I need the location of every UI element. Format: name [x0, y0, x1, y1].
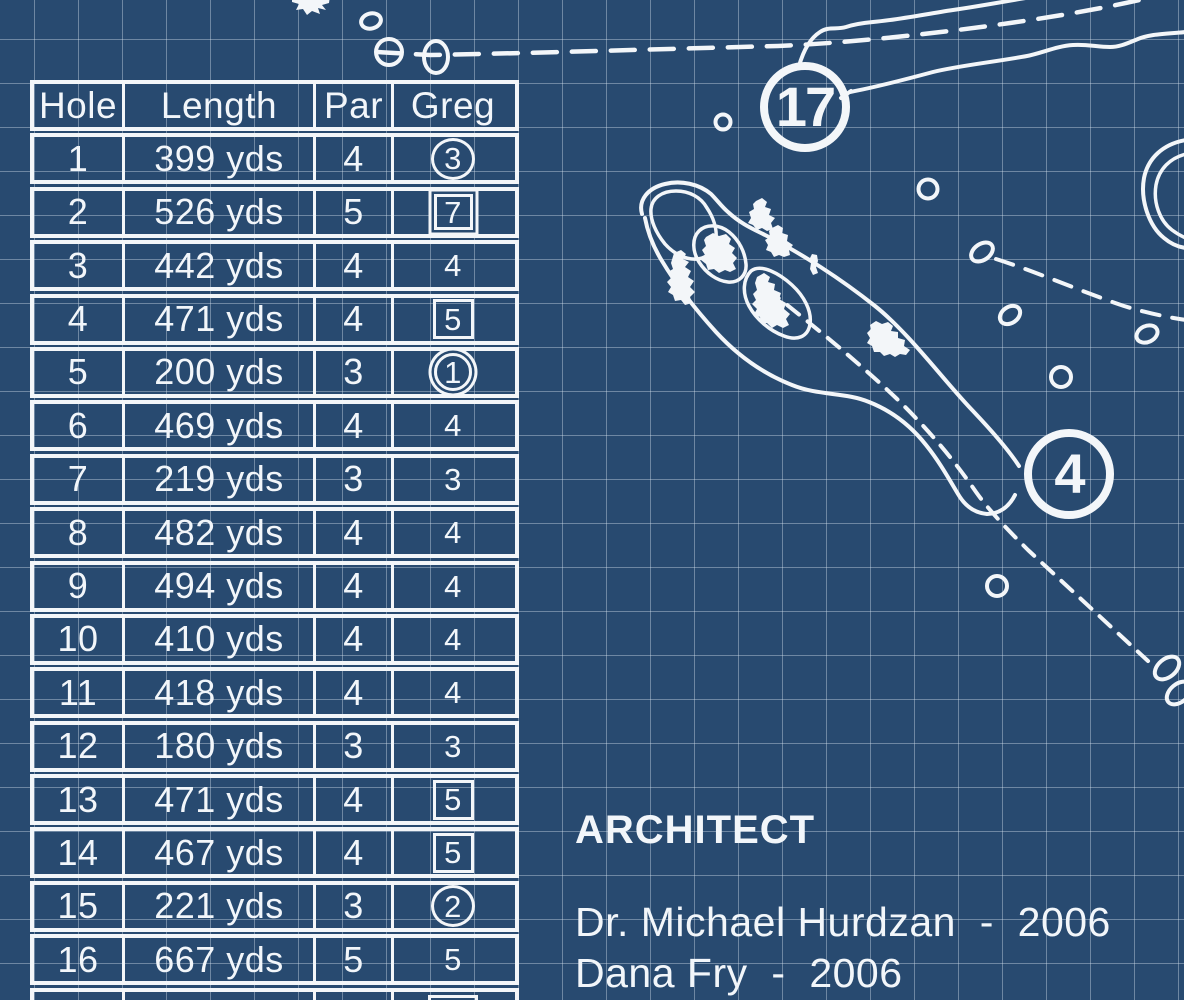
tee-ellipse	[996, 302, 1023, 328]
table-row: 14467 yds45	[30, 827, 519, 878]
cell-par: 5	[316, 191, 394, 234]
scorecard-rows: 1399 yds432526 yds573442 yds444471 yds45…	[30, 133, 519, 985]
hole-4-marker: 4	[1028, 433, 1110, 515]
cell-hole: 7	[34, 458, 125, 501]
cell-hole: 1	[34, 137, 125, 180]
architect-line: Dana Fry - 2006	[575, 948, 1111, 999]
cell-par: 4	[316, 565, 394, 608]
score-marker-partial	[428, 995, 478, 1000]
cell-hole: 16	[34, 938, 125, 981]
cell-par: 3	[316, 351, 394, 394]
cell-par: 4	[316, 298, 394, 341]
cell-par	[316, 992, 394, 1000]
table-row: 13471 yds45	[30, 774, 519, 825]
table-row: 1399 yds43	[30, 133, 519, 184]
score-marker: 3	[444, 464, 462, 495]
cell-score: 4	[394, 671, 512, 714]
fairway-17-lower-edge	[850, 32, 1184, 92]
header-greg: Greg	[394, 84, 512, 127]
tree-circle	[987, 576, 1007, 596]
hole-4-marker-number: 4	[1054, 442, 1085, 505]
cell-score: 4	[394, 244, 512, 287]
tee-ellipse	[1134, 322, 1161, 346]
table-row: 12180 yds33	[30, 721, 519, 772]
shot-line-17	[377, 0, 1148, 55]
blueprint-canvas: 17 4 Hole Length Par Greg 1399 yds432526…	[0, 0, 1184, 1000]
table-row: 10410 yds44	[30, 614, 519, 665]
score-marker: 3	[444, 731, 462, 762]
bunker-sand	[867, 321, 910, 357]
cell-length	[125, 992, 316, 1000]
table-row: 4471 yds45	[30, 294, 519, 345]
cell-length: 219 yds	[125, 458, 316, 501]
table-row: 9494 yds44	[30, 561, 519, 612]
cell-par: 4	[316, 778, 394, 821]
cell-par: 4	[316, 404, 394, 447]
cell-hole: 11	[34, 671, 125, 714]
cell-length: 410 yds	[125, 618, 316, 661]
header-par: Par	[316, 84, 394, 127]
cell-par: 3	[316, 725, 394, 768]
table-row: 2526 yds57	[30, 187, 519, 238]
cell-score: 3	[394, 137, 512, 180]
scorecard-header-row: Hole Length Par Greg	[30, 80, 519, 131]
cell-score	[394, 992, 512, 1000]
cell-hole: 10	[34, 618, 125, 661]
score-marker: 4	[444, 677, 462, 708]
fairway-4-north-edge	[641, 182, 1019, 466]
score-marker: 5	[433, 833, 474, 873]
cell-score: 3	[394, 458, 512, 501]
score-marker: 4	[444, 410, 462, 441]
table-row: 5200 yds31	[30, 347, 519, 398]
cell-length: 526 yds	[125, 191, 316, 234]
table-row: 11418 yds44	[30, 667, 519, 718]
tree-circle	[919, 180, 938, 199]
score-marker: 4	[444, 571, 462, 602]
cell-length: 482 yds	[125, 511, 316, 554]
cell-hole: 14	[34, 831, 125, 874]
cell-length: 471 yds	[125, 298, 316, 341]
table-row: 6469 yds44	[30, 400, 519, 451]
cell-hole: 5	[34, 351, 125, 394]
tee-ellipse	[1162, 677, 1184, 709]
cell-par: 4	[316, 511, 394, 554]
cell-hole: 2	[34, 191, 125, 234]
cell-length: 221 yds	[125, 885, 316, 928]
header-length: Length	[125, 84, 316, 127]
cell-score: 4	[394, 565, 512, 608]
table-row: 16667 yds55	[30, 934, 519, 985]
hole-17-marker-number: 17	[776, 75, 834, 138]
cell-length: 399 yds	[125, 137, 316, 180]
score-marker: 1	[434, 353, 472, 391]
architect-block: ARCHITECT Dr. Michael Hurdzan - 2006Dana…	[575, 772, 1111, 1000]
score-marker: 4	[444, 250, 462, 281]
bunker-sand	[748, 198, 775, 231]
cell-par: 4	[316, 671, 394, 714]
scorecard-table: Hole Length Par Greg 1399 yds432526 yds5…	[30, 80, 519, 1000]
score-marker: 5	[433, 780, 474, 820]
header-hole: Hole	[34, 84, 125, 127]
cell-score: 4	[394, 618, 512, 661]
architect-line: Dr. Michael Hurdzan - 2006	[575, 897, 1111, 948]
cell-length: 471 yds	[125, 778, 316, 821]
cell-length: 418 yds	[125, 671, 316, 714]
fairway-17-upper-edge	[799, 0, 1038, 66]
table-row: 15221 yds32	[30, 881, 519, 932]
score-marker: 3	[431, 138, 475, 180]
cell-par: 4	[316, 244, 394, 287]
score-marker: 7	[434, 194, 473, 230]
score-marker: 4	[444, 517, 462, 548]
cell-par: 5	[316, 938, 394, 981]
cell-score: 5	[394, 298, 512, 341]
shot-line-right	[996, 259, 1184, 320]
cell-par: 3	[316, 885, 394, 928]
cell-hole: 4	[34, 298, 125, 341]
cell-length: 180 yds	[125, 725, 316, 768]
cell-length: 667 yds	[125, 938, 316, 981]
cell-hole: 15	[34, 885, 125, 928]
table-row: 8482 yds44	[30, 507, 519, 558]
cell-score: 3	[394, 725, 512, 768]
bunker-sand	[810, 254, 818, 275]
cell-par: 4	[316, 137, 394, 180]
hole-17-marker: 17	[764, 66, 846, 148]
tee-ellipse	[1150, 652, 1183, 684]
cell-score: 7	[394, 191, 512, 234]
architect-heading: ARCHITECT	[575, 808, 1111, 853]
bunker-sand	[701, 233, 737, 273]
score-marker: 4	[444, 624, 462, 655]
cell-hole: 3	[34, 244, 125, 287]
bunker-sand-group	[667, 198, 910, 357]
score-marker: 5	[444, 944, 462, 975]
cell-par: 4	[316, 831, 394, 874]
tree-circle	[716, 115, 731, 130]
cell-score: 1	[394, 351, 512, 394]
tee-ellipse	[968, 239, 997, 266]
table-row: 7219 yds33	[30, 454, 519, 505]
cell-hole: 12	[34, 725, 125, 768]
table-row: 3442 yds44	[30, 240, 519, 291]
cell-hole	[34, 992, 125, 1000]
cell-hole: 13	[34, 778, 125, 821]
cell-hole: 9	[34, 565, 125, 608]
cell-score: 5	[394, 831, 512, 874]
cell-hole: 6	[34, 404, 125, 447]
shot-line-4	[767, 289, 1148, 661]
cell-length: 494 yds	[125, 565, 316, 608]
tree-blob	[292, 0, 330, 15]
cell-score: 4	[394, 404, 512, 447]
score-marker: 5	[433, 299, 474, 339]
green-right-inner	[1155, 154, 1184, 238]
cell-length: 442 yds	[125, 244, 316, 287]
cell-length: 200 yds	[125, 351, 316, 394]
tree-circle	[1051, 367, 1071, 387]
cell-score: 5	[394, 778, 512, 821]
cell-score: 5	[394, 938, 512, 981]
cell-length: 467 yds	[125, 831, 316, 874]
cell-par: 3	[316, 458, 394, 501]
cell-par: 4	[316, 618, 394, 661]
architect-lines: Dr. Michael Hurdzan - 2006Dana Fry - 200…	[575, 897, 1111, 1000]
cell-length: 469 yds	[125, 404, 316, 447]
scorecard-partial-row	[30, 988, 519, 1000]
cell-score: 2	[394, 885, 512, 928]
score-marker: 2	[431, 885, 475, 927]
cell-score: 4	[394, 511, 512, 554]
tee-ellipse	[359, 11, 382, 30]
cell-hole: 8	[34, 511, 125, 554]
